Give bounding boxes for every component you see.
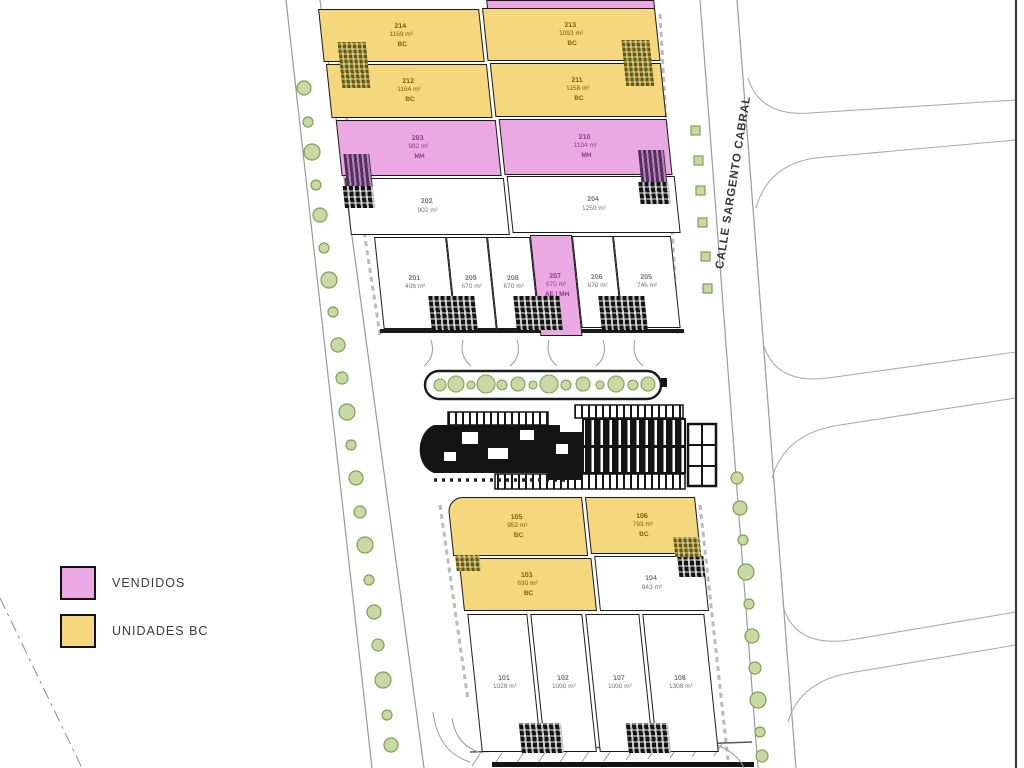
lot-area: 793 m² — [632, 521, 653, 530]
lot-number: 101 — [498, 674, 511, 683]
lot-area: 1158 m² — [566, 85, 590, 94]
lot-number: 203 — [411, 134, 424, 143]
lot-area: 982 m² — [408, 143, 429, 152]
legend-row-unidades-bc: UNIDADES BC — [60, 614, 208, 648]
lot-area: 670 m² — [503, 283, 524, 292]
median-strip — [425, 371, 667, 399]
lot-number: 204 — [587, 195, 600, 204]
vendidos-swatch — [60, 566, 96, 600]
lot-class: MH — [414, 153, 425, 162]
north-block: 214 1169 m² BC 213 1093 m² BC 212 1164 m… — [318, 8, 694, 348]
lot-number: 202 — [421, 197, 434, 206]
unidades-bc-label: UNIDADES BC — [112, 624, 208, 638]
garage-block — [519, 723, 564, 753]
lot-south-105: 105 952 m² BC — [447, 497, 588, 556]
lot-area: 408 m² — [405, 283, 426, 292]
garage-block — [598, 296, 648, 330]
legend: VENDIDOS UNIDADES BC — [60, 566, 208, 662]
lot-area: 1250 m² — [582, 205, 607, 214]
lot-class: BC — [574, 95, 584, 104]
lot-number: 108 — [674, 674, 687, 683]
lot-number: 213 — [564, 21, 577, 30]
site-plan-canvas: 214 1169 m² BC 213 1093 m² BC 212 1164 m… — [0, 0, 1024, 768]
lot-area: 1169 m² — [389, 31, 413, 40]
lot-class: BC — [567, 40, 577, 49]
lot-number: 208 — [507, 274, 520, 283]
lot-number: 205 — [640, 273, 653, 282]
lot-area: 690 m² — [517, 580, 538, 589]
lot-area: 1000 m² — [552, 683, 577, 692]
east-cross-roads — [748, 78, 1016, 722]
lot-number: 209 — [465, 274, 478, 283]
lot-area: 670 m² — [546, 281, 567, 290]
lot-number: 210 — [578, 133, 591, 142]
lot-number: 102 — [557, 674, 570, 683]
lot-area: 1164 m² — [397, 86, 421, 95]
lot-area: 1308 m² — [669, 683, 694, 692]
lot-class: BC — [397, 41, 407, 50]
unidades-bc-swatch — [60, 614, 96, 648]
access-mark — [677, 557, 705, 577]
lot-area: 670 m² — [587, 282, 608, 291]
lot-class: MH — [581, 152, 592, 161]
lot-area: 1000 m² — [608, 683, 633, 692]
access-mark — [455, 555, 481, 571]
lot-area: 746 m² — [637, 282, 658, 291]
lot-number: 104 — [645, 574, 658, 583]
access-mark — [673, 537, 701, 557]
lot-class: BC — [524, 590, 534, 599]
lot-class: BC — [513, 532, 523, 541]
access-mark — [343, 154, 373, 188]
lot-area: 843 m² — [642, 584, 663, 593]
lot-class: BC — [639, 531, 649, 540]
access-mark — [343, 186, 375, 208]
lot-number: 207 — [549, 272, 562, 281]
lot-area: 902 m² — [417, 207, 438, 216]
vendidos-label: VENDIDOS — [112, 576, 185, 590]
garage-block — [428, 296, 478, 330]
access-mark — [621, 40, 654, 86]
lot-number: 105 — [510, 513, 523, 522]
lot-number: 214 — [394, 22, 407, 31]
lot-area: 1028 m² — [493, 683, 518, 692]
lot-area: 1104 m² — [573, 142, 597, 151]
lot-number: 212 — [402, 77, 415, 86]
lot-area: 1093 m² — [559, 30, 584, 39]
access-mark — [638, 182, 670, 204]
lot-area: 952 m² — [507, 522, 528, 531]
lot-number: 106 — [636, 512, 649, 521]
lot-number: 206 — [590, 273, 603, 282]
lot-number: 211 — [571, 76, 583, 85]
building-footprint — [420, 405, 716, 489]
lot-number: 201 — [408, 274, 421, 283]
legend-row-vendidos: VENDIDOS — [60, 566, 208, 600]
access-mark — [638, 150, 668, 184]
south-block: 105 952 m² BC 106 793 m² BC 103 690 m² B… — [447, 497, 733, 767]
lot-number: 107 — [613, 674, 626, 683]
lot-class: BC — [405, 96, 415, 105]
garage-block — [513, 296, 563, 330]
lot-area: 670 m² — [461, 283, 482, 292]
access-mark — [338, 42, 371, 88]
lot-number: 103 — [520, 571, 533, 580]
garage-block — [626, 723, 671, 753]
